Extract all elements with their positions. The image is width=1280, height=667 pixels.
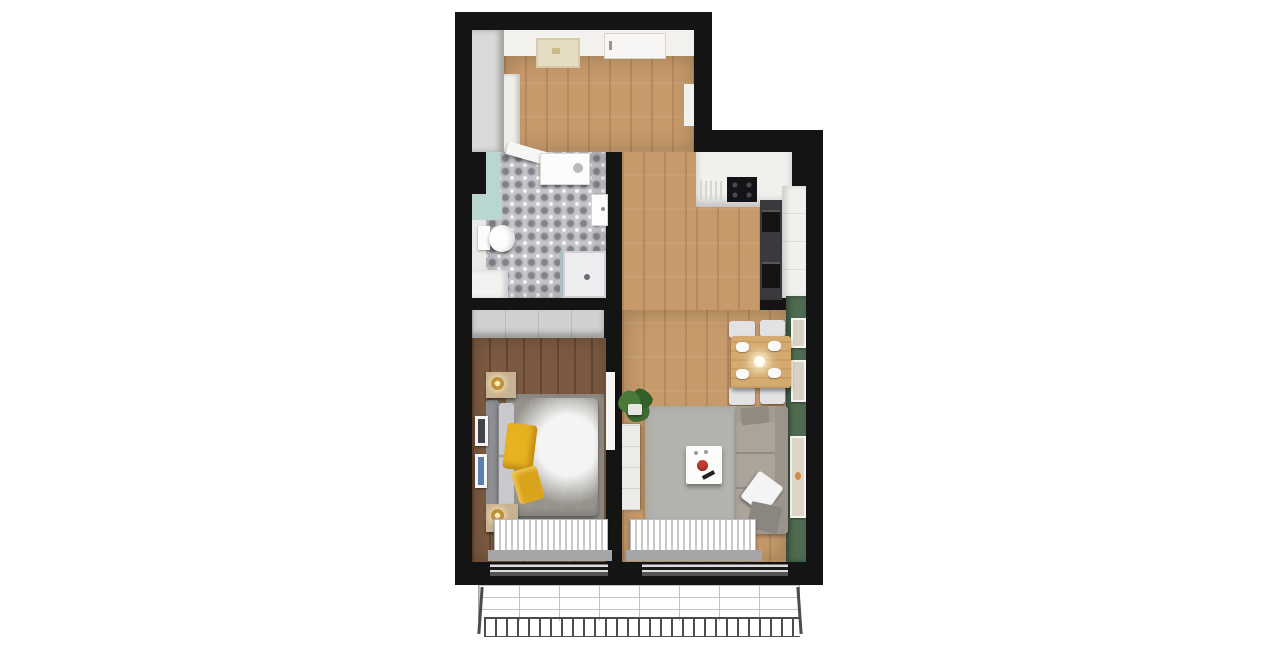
bathroom-sink (591, 194, 608, 226)
shower-glass-panel (560, 251, 563, 298)
floor-plan-render (0, 0, 1280, 667)
yellow-blanket (502, 422, 537, 471)
bedroom-window-sill (488, 550, 612, 561)
toilet-bowl (489, 225, 515, 252)
console-sideboard (622, 424, 640, 510)
bedroom-wardrobe (472, 310, 604, 338)
sofa-throw-blanket (740, 406, 770, 426)
built-in-oven (762, 210, 780, 232)
pendant-lamp (754, 356, 765, 367)
shower-tray (563, 251, 606, 298)
place-setting (768, 368, 781, 378)
built-in-microwave (762, 262, 780, 288)
dining-chair (760, 386, 785, 404)
green-wall-frame-2 (791, 360, 806, 402)
entrance-door (604, 33, 666, 59)
dining-chair (729, 387, 755, 405)
green-wall-frame-1 (791, 318, 806, 348)
hall-wood-floor (504, 56, 694, 152)
plant-pot (628, 404, 642, 415)
hall-wardrobe (472, 30, 504, 152)
hall-wall-cabinet (504, 74, 520, 152)
nightstand-with-lamp (486, 372, 516, 398)
balcony-tile-floor (478, 585, 800, 621)
bathroom-cabinet (472, 270, 508, 298)
kitchen-wood-floor (696, 207, 760, 312)
sofa-cushion-seam (736, 452, 775, 454)
red-bowl (697, 460, 708, 471)
kitchen-white-tall-cabinet (782, 186, 806, 298)
green-wall-frame-3 (790, 436, 806, 518)
corridor-wood-floor (622, 152, 700, 312)
living-room-radiator (630, 519, 756, 552)
washing-machine (540, 153, 590, 185)
place-setting (736, 342, 749, 352)
bedroom-wall-frame-blue (475, 454, 487, 488)
bathroom-teal-wall-strip (486, 152, 500, 196)
cooktop (727, 177, 757, 202)
dining-chair (760, 320, 785, 337)
bedroom-wall-frame-dark (475, 416, 488, 446)
hall-ceiling-lamp (536, 38, 580, 68)
cup (704, 450, 708, 454)
balcony-railing (484, 617, 800, 637)
place-setting (768, 341, 781, 351)
bedroom-radiator (494, 519, 608, 552)
hall-mirror-panel (684, 84, 694, 126)
cup (694, 451, 698, 455)
bedroom-window (490, 564, 608, 576)
place-setting (736, 369, 749, 379)
dish-rack (700, 181, 722, 200)
living-room-window (642, 564, 788, 576)
living-room-window-sill (626, 550, 762, 561)
bathroom-teal-wall (472, 194, 502, 220)
